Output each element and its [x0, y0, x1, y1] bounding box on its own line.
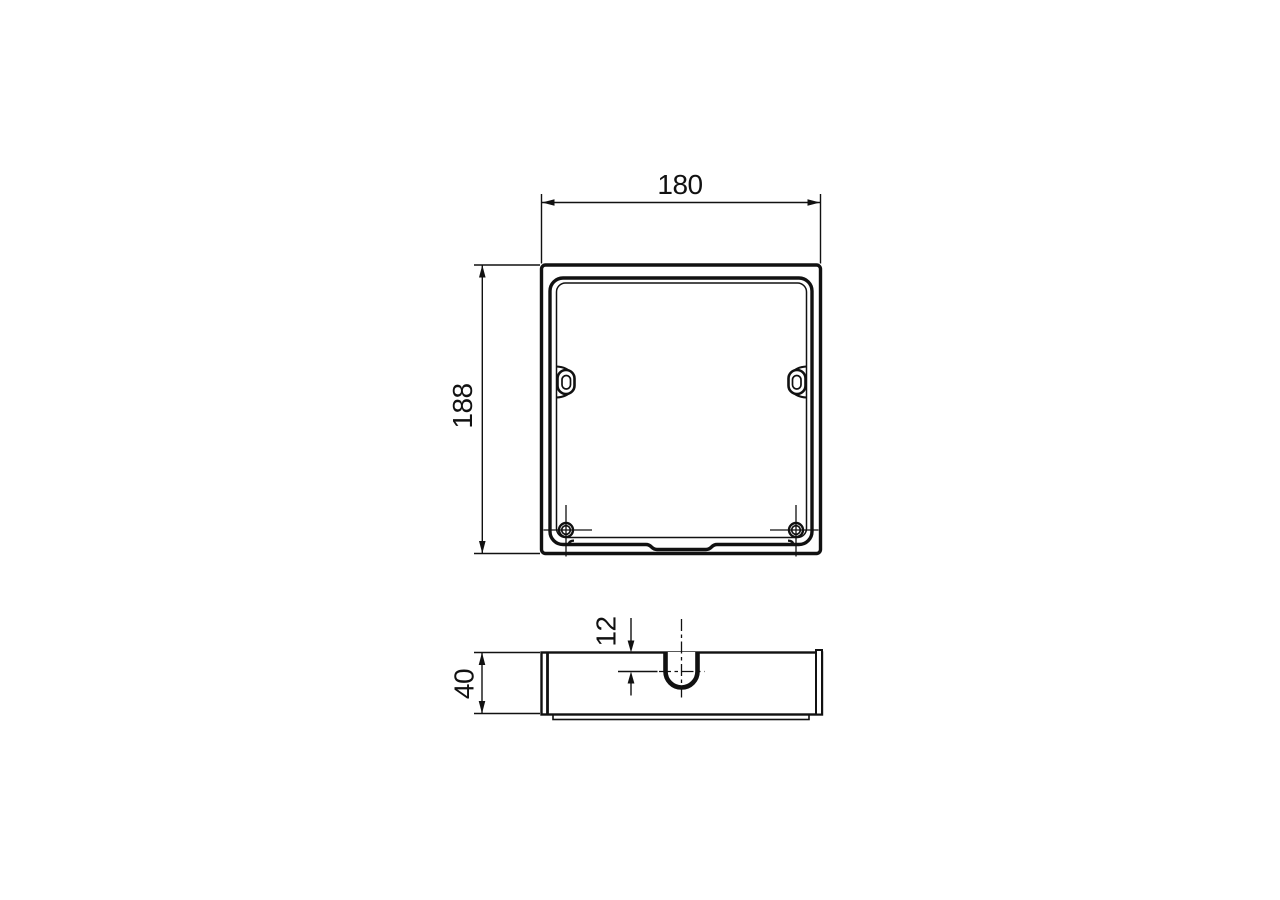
side-view-base-plate — [553, 715, 809, 720]
dim-12-label: 12 — [591, 616, 622, 646]
slot-hole-right — [793, 376, 802, 390]
dim-12-arrow-down — [628, 641, 635, 653]
top-view-inner-wall — [550, 278, 812, 550]
dimension-depth-40: 40 — [449, 653, 541, 714]
dim-188-extension-lines — [474, 265, 540, 554]
dim-180-arrow-left — [542, 199, 555, 206]
dim-180-arrow-right — [808, 199, 821, 206]
dimension-width-180: 180 — [542, 169, 821, 264]
drawing-root: 180 188 40 12 — [447, 169, 822, 720]
slot-hole-left — [562, 376, 571, 390]
drawing-canvas: 180 188 40 12 — [0, 0, 1280, 900]
dim-188-arrow-bottom — [479, 541, 486, 554]
dim-188-arrow-top — [479, 265, 486, 278]
side-view — [542, 619, 823, 720]
side-view-right-flange — [816, 650, 822, 715]
dim-40-label: 40 — [449, 669, 480, 699]
dim-40-arrow-top — [479, 653, 486, 666]
dimension-height-188: 188 — [447, 265, 540, 554]
dim-188-label: 188 — [447, 383, 478, 428]
dim-40-arrow-bottom — [479, 701, 486, 714]
top-view — [542, 265, 821, 557]
dim-180-extension-lines — [542, 194, 821, 264]
dim-180-label: 180 — [657, 169, 702, 200]
